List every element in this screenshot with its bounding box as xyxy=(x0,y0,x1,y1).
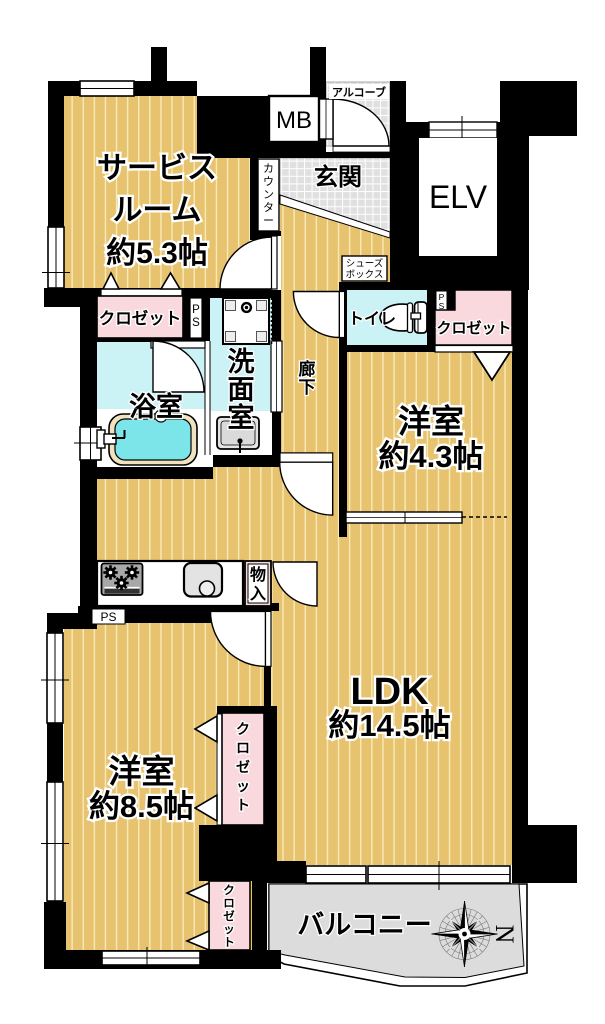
svg-text:ウ: ウ xyxy=(263,175,274,188)
svg-text:バルコニー: バルコニー xyxy=(297,910,431,940)
svg-text:約4.3帖: 約4.3帖 xyxy=(378,439,483,474)
svg-text:N: N xyxy=(490,925,519,944)
svg-text:ク: ク xyxy=(223,884,235,897)
svg-text:下: 下 xyxy=(299,378,316,397)
svg-text:ン: ン xyxy=(263,189,274,201)
svg-text:ルーム: ルーム xyxy=(112,194,201,227)
svg-text:ー: ー xyxy=(263,215,274,227)
svg-text:LDK: LDK xyxy=(350,671,429,713)
svg-text:サービス: サービス xyxy=(97,152,217,185)
svg-text:シューズ: シューズ xyxy=(346,258,384,270)
svg-text:ゼ: ゼ xyxy=(236,759,250,775)
svg-text:ゼ: ゼ xyxy=(223,909,235,923)
svg-text:ト: ト xyxy=(236,797,250,813)
svg-text:アルコーブ: アルコーブ xyxy=(332,85,386,99)
svg-text:物: 物 xyxy=(250,565,266,584)
svg-text:ロ: ロ xyxy=(236,740,250,756)
svg-text:入: 入 xyxy=(250,585,266,603)
svg-text:約8.5帖: 約8.5帖 xyxy=(89,789,194,824)
svg-text:クロゼット: クロゼット xyxy=(436,319,511,337)
svg-text:ッ: ッ xyxy=(236,778,250,794)
svg-text:ELV: ELV xyxy=(429,179,488,215)
svg-text:廊: 廊 xyxy=(299,359,316,379)
svg-text:クロゼット: クロゼット xyxy=(99,308,182,328)
svg-text:玄関: 玄関 xyxy=(314,163,362,191)
svg-text:面: 面 xyxy=(228,375,255,405)
svg-text:ッ: ッ xyxy=(223,924,235,936)
svg-text:カ: カ xyxy=(263,162,274,175)
svg-text:S: S xyxy=(192,317,200,329)
svg-text:PS: PS xyxy=(100,610,116,624)
svg-text:室: 室 xyxy=(228,402,255,433)
svg-text:ロ: ロ xyxy=(223,898,235,910)
svg-text:P: P xyxy=(192,304,200,316)
svg-text:洋室: 洋室 xyxy=(109,753,175,790)
svg-text:ト: ト xyxy=(223,936,235,949)
svg-text:洗: 洗 xyxy=(228,347,255,377)
svg-text:洋室: 洋室 xyxy=(398,403,464,440)
svg-text:MB: MB xyxy=(276,107,312,134)
svg-text:浴室: 浴室 xyxy=(129,391,183,422)
svg-text:約5.3帖: 約5.3帖 xyxy=(106,237,208,270)
svg-text:約14.5帖: 約14.5帖 xyxy=(328,708,450,743)
svg-text:タ: タ xyxy=(263,201,274,214)
svg-text:ク: ク xyxy=(236,721,250,737)
svg-text:トイレ: トイレ xyxy=(348,311,396,328)
svg-text:ボックス: ボックス xyxy=(346,270,384,281)
